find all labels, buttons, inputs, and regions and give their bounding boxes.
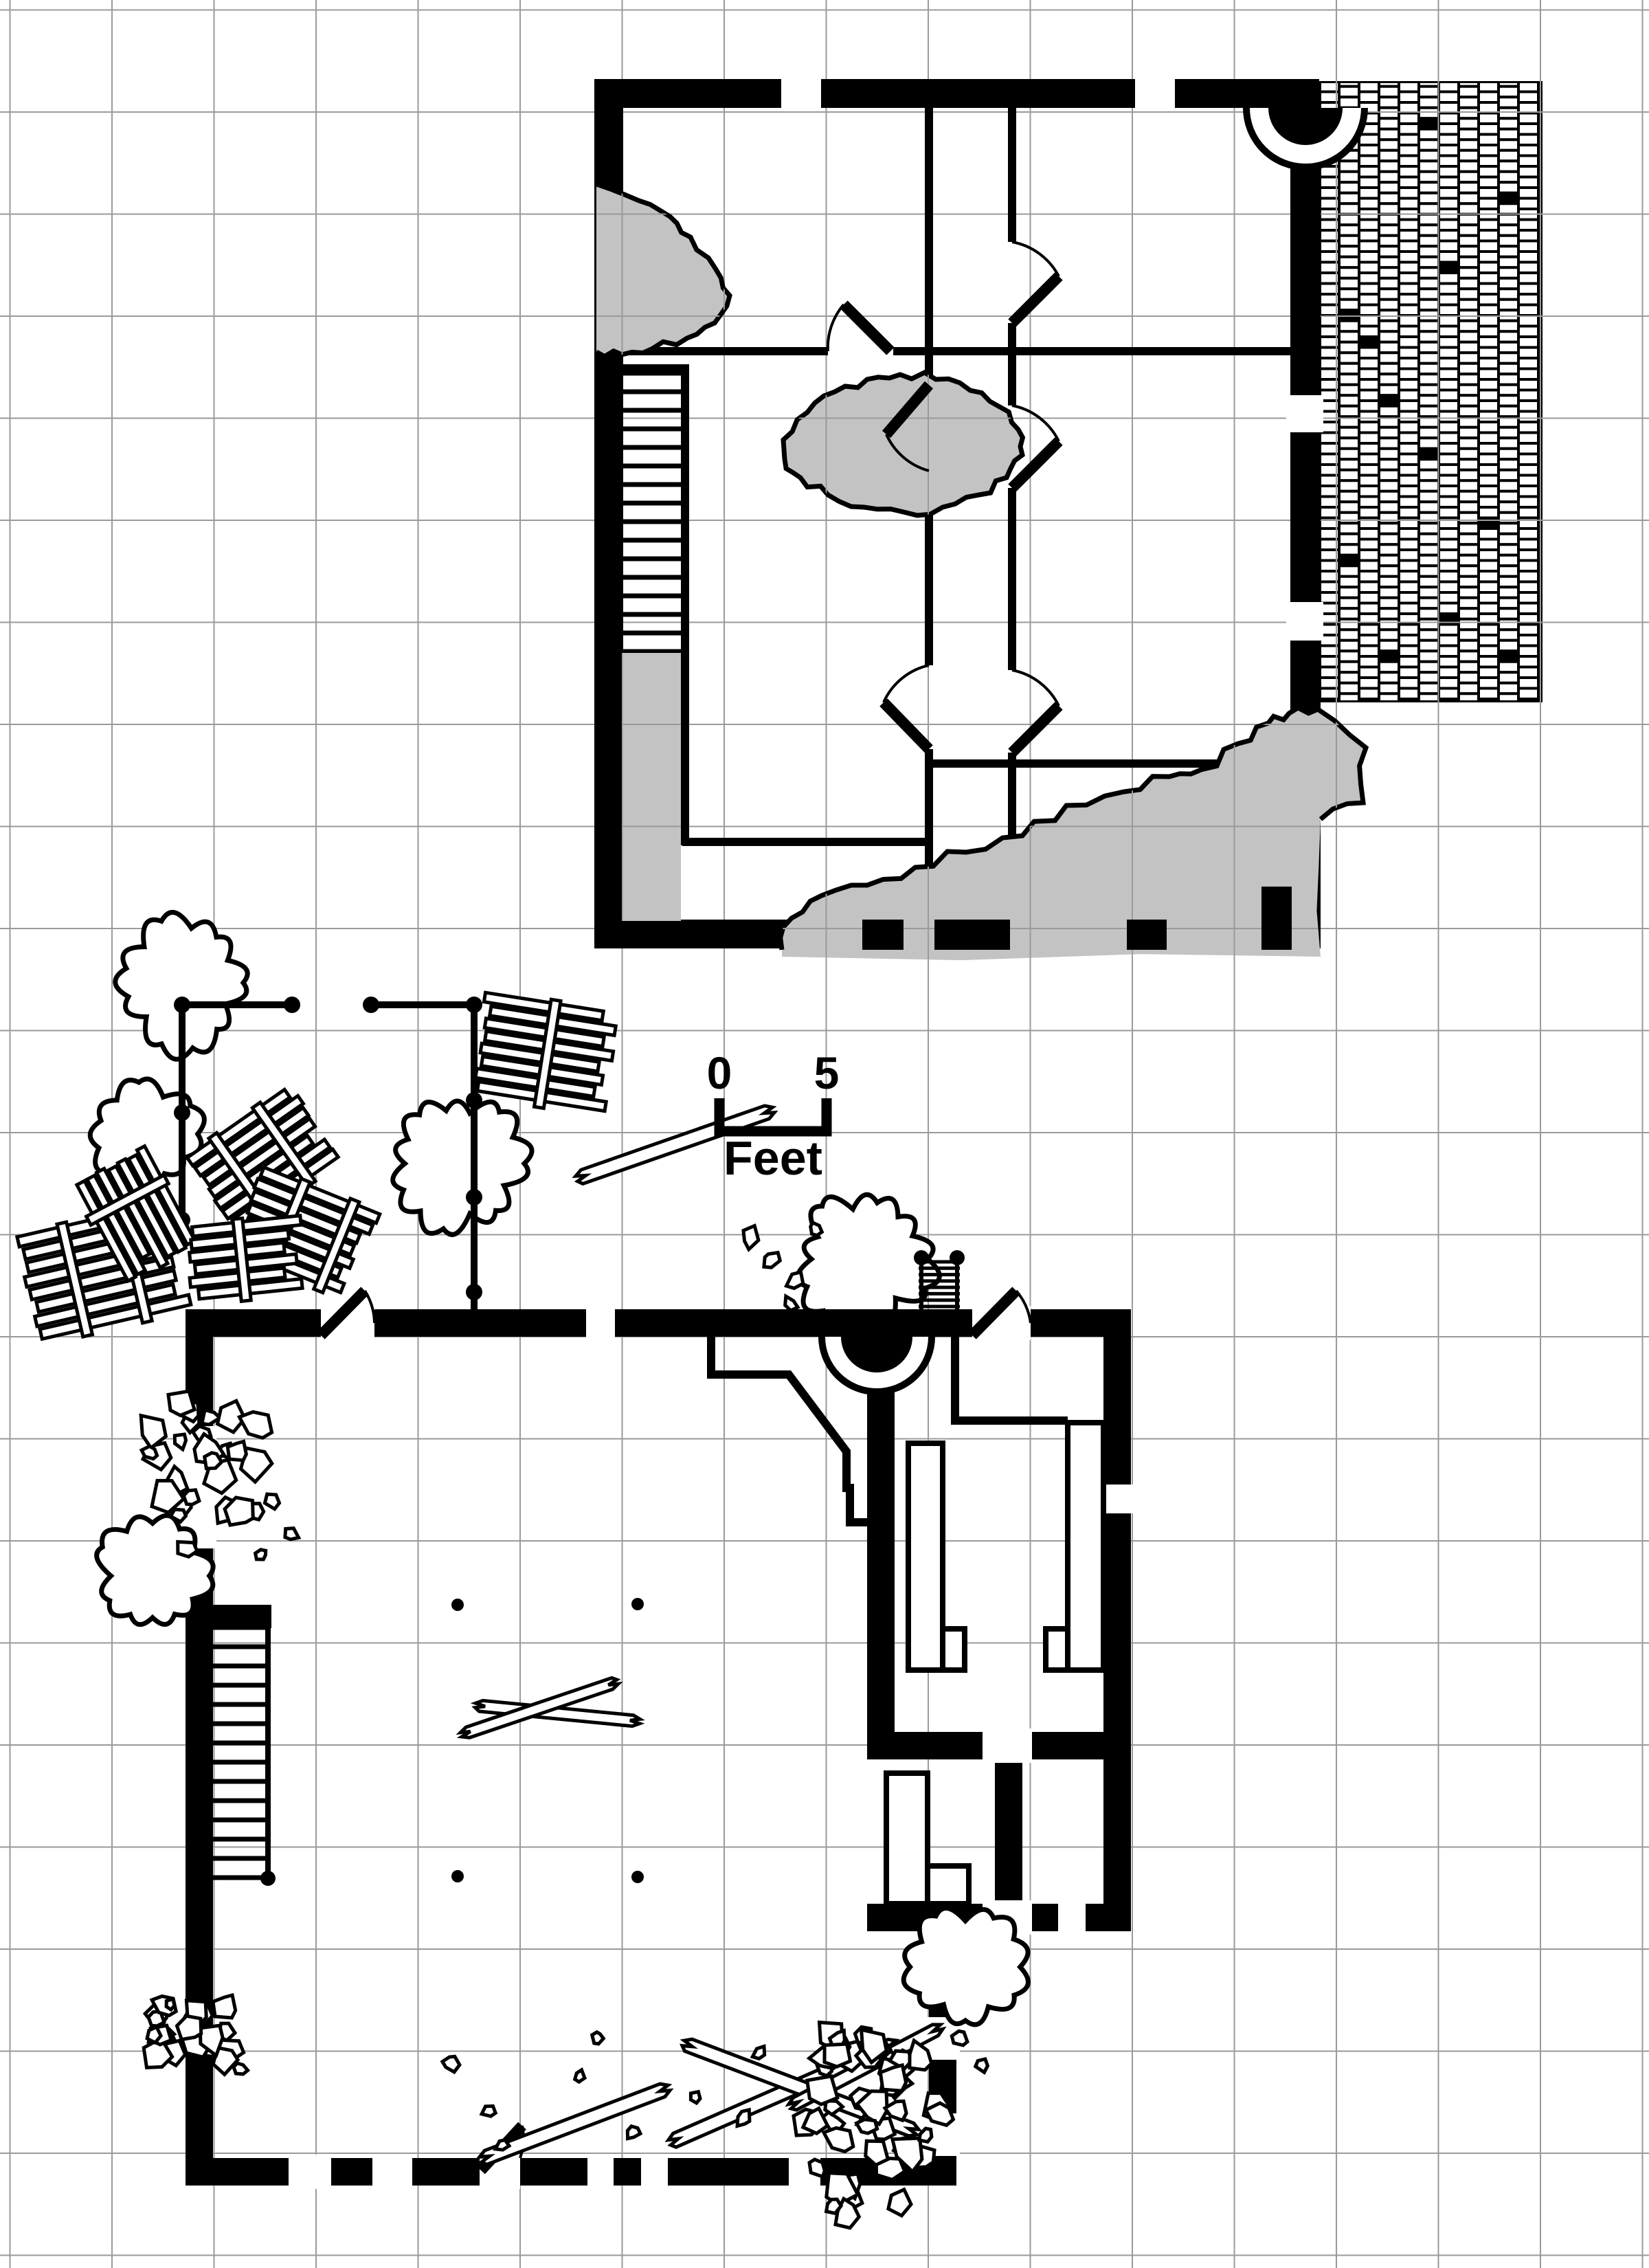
map-svg [0, 0, 1649, 2268]
scale-label-five: 5 [814, 1050, 840, 1096]
scale-label-zero: 0 [707, 1050, 732, 1096]
map-page: 0 5 Feet [0, 0, 1649, 2268]
floorplan-map [0, 0, 1649, 2268]
scale-caption-feet: Feet [723, 1134, 822, 1182]
